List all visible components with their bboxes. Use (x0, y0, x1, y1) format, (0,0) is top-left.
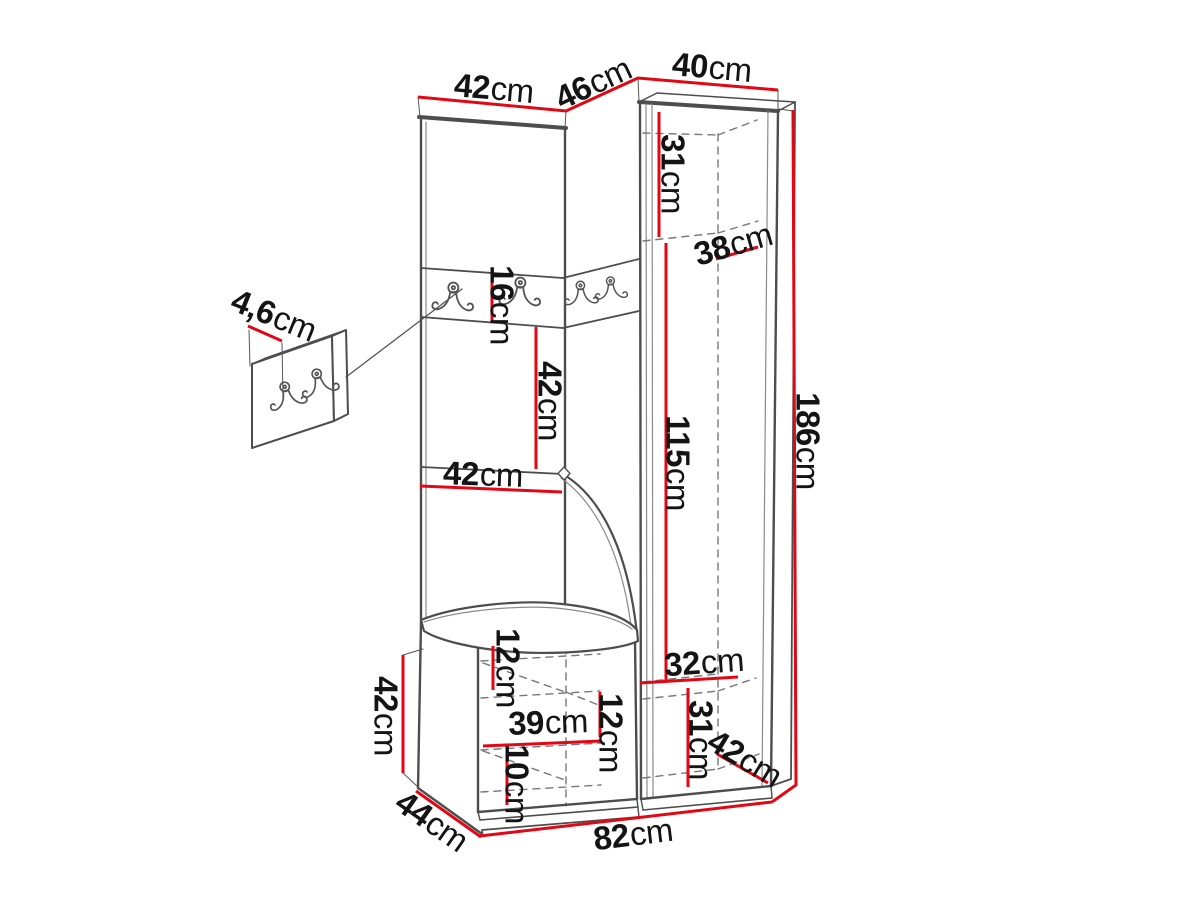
dim-label-bench-top-inset: 12cm (492, 628, 525, 708)
diagram-canvas: 42cm 46cm 40cm 31cm 38cm 186cm 16cm 42cm… (0, 0, 1200, 899)
seat-cushion (421, 602, 638, 652)
dim-label-base-width: 82cm (591, 813, 674, 855)
dim-label-bench-inner-height: 12cm (595, 693, 628, 773)
dim-label-bench-inner-width: 39cm (508, 704, 589, 740)
coat-hook-icon (594, 276, 627, 299)
dim-label-upper-inner-height: 31cm (657, 134, 690, 214)
dim-label-hook-rail-height: 16cm (486, 265, 519, 345)
coat-hook-icon (563, 280, 598, 305)
dim-label-top-width-left: 42cm (453, 68, 535, 108)
dim-label-top-width-right: 40cm (671, 47, 753, 87)
dim-label-niche-height: 42cm (534, 361, 567, 441)
dim-label-bench-height: 42cm (370, 676, 403, 756)
wall-hook-panel (252, 330, 348, 448)
dim-label-niche-width: 42cm (443, 456, 524, 492)
dim-label-lower-inner-width: 32cm (663, 643, 745, 681)
dim-label-bench-bottom-inset: 10cm (501, 744, 534, 824)
dim-label-tall-inner-height: 115cm (662, 415, 695, 511)
dim-label-total-height: 186cm (792, 392, 825, 490)
